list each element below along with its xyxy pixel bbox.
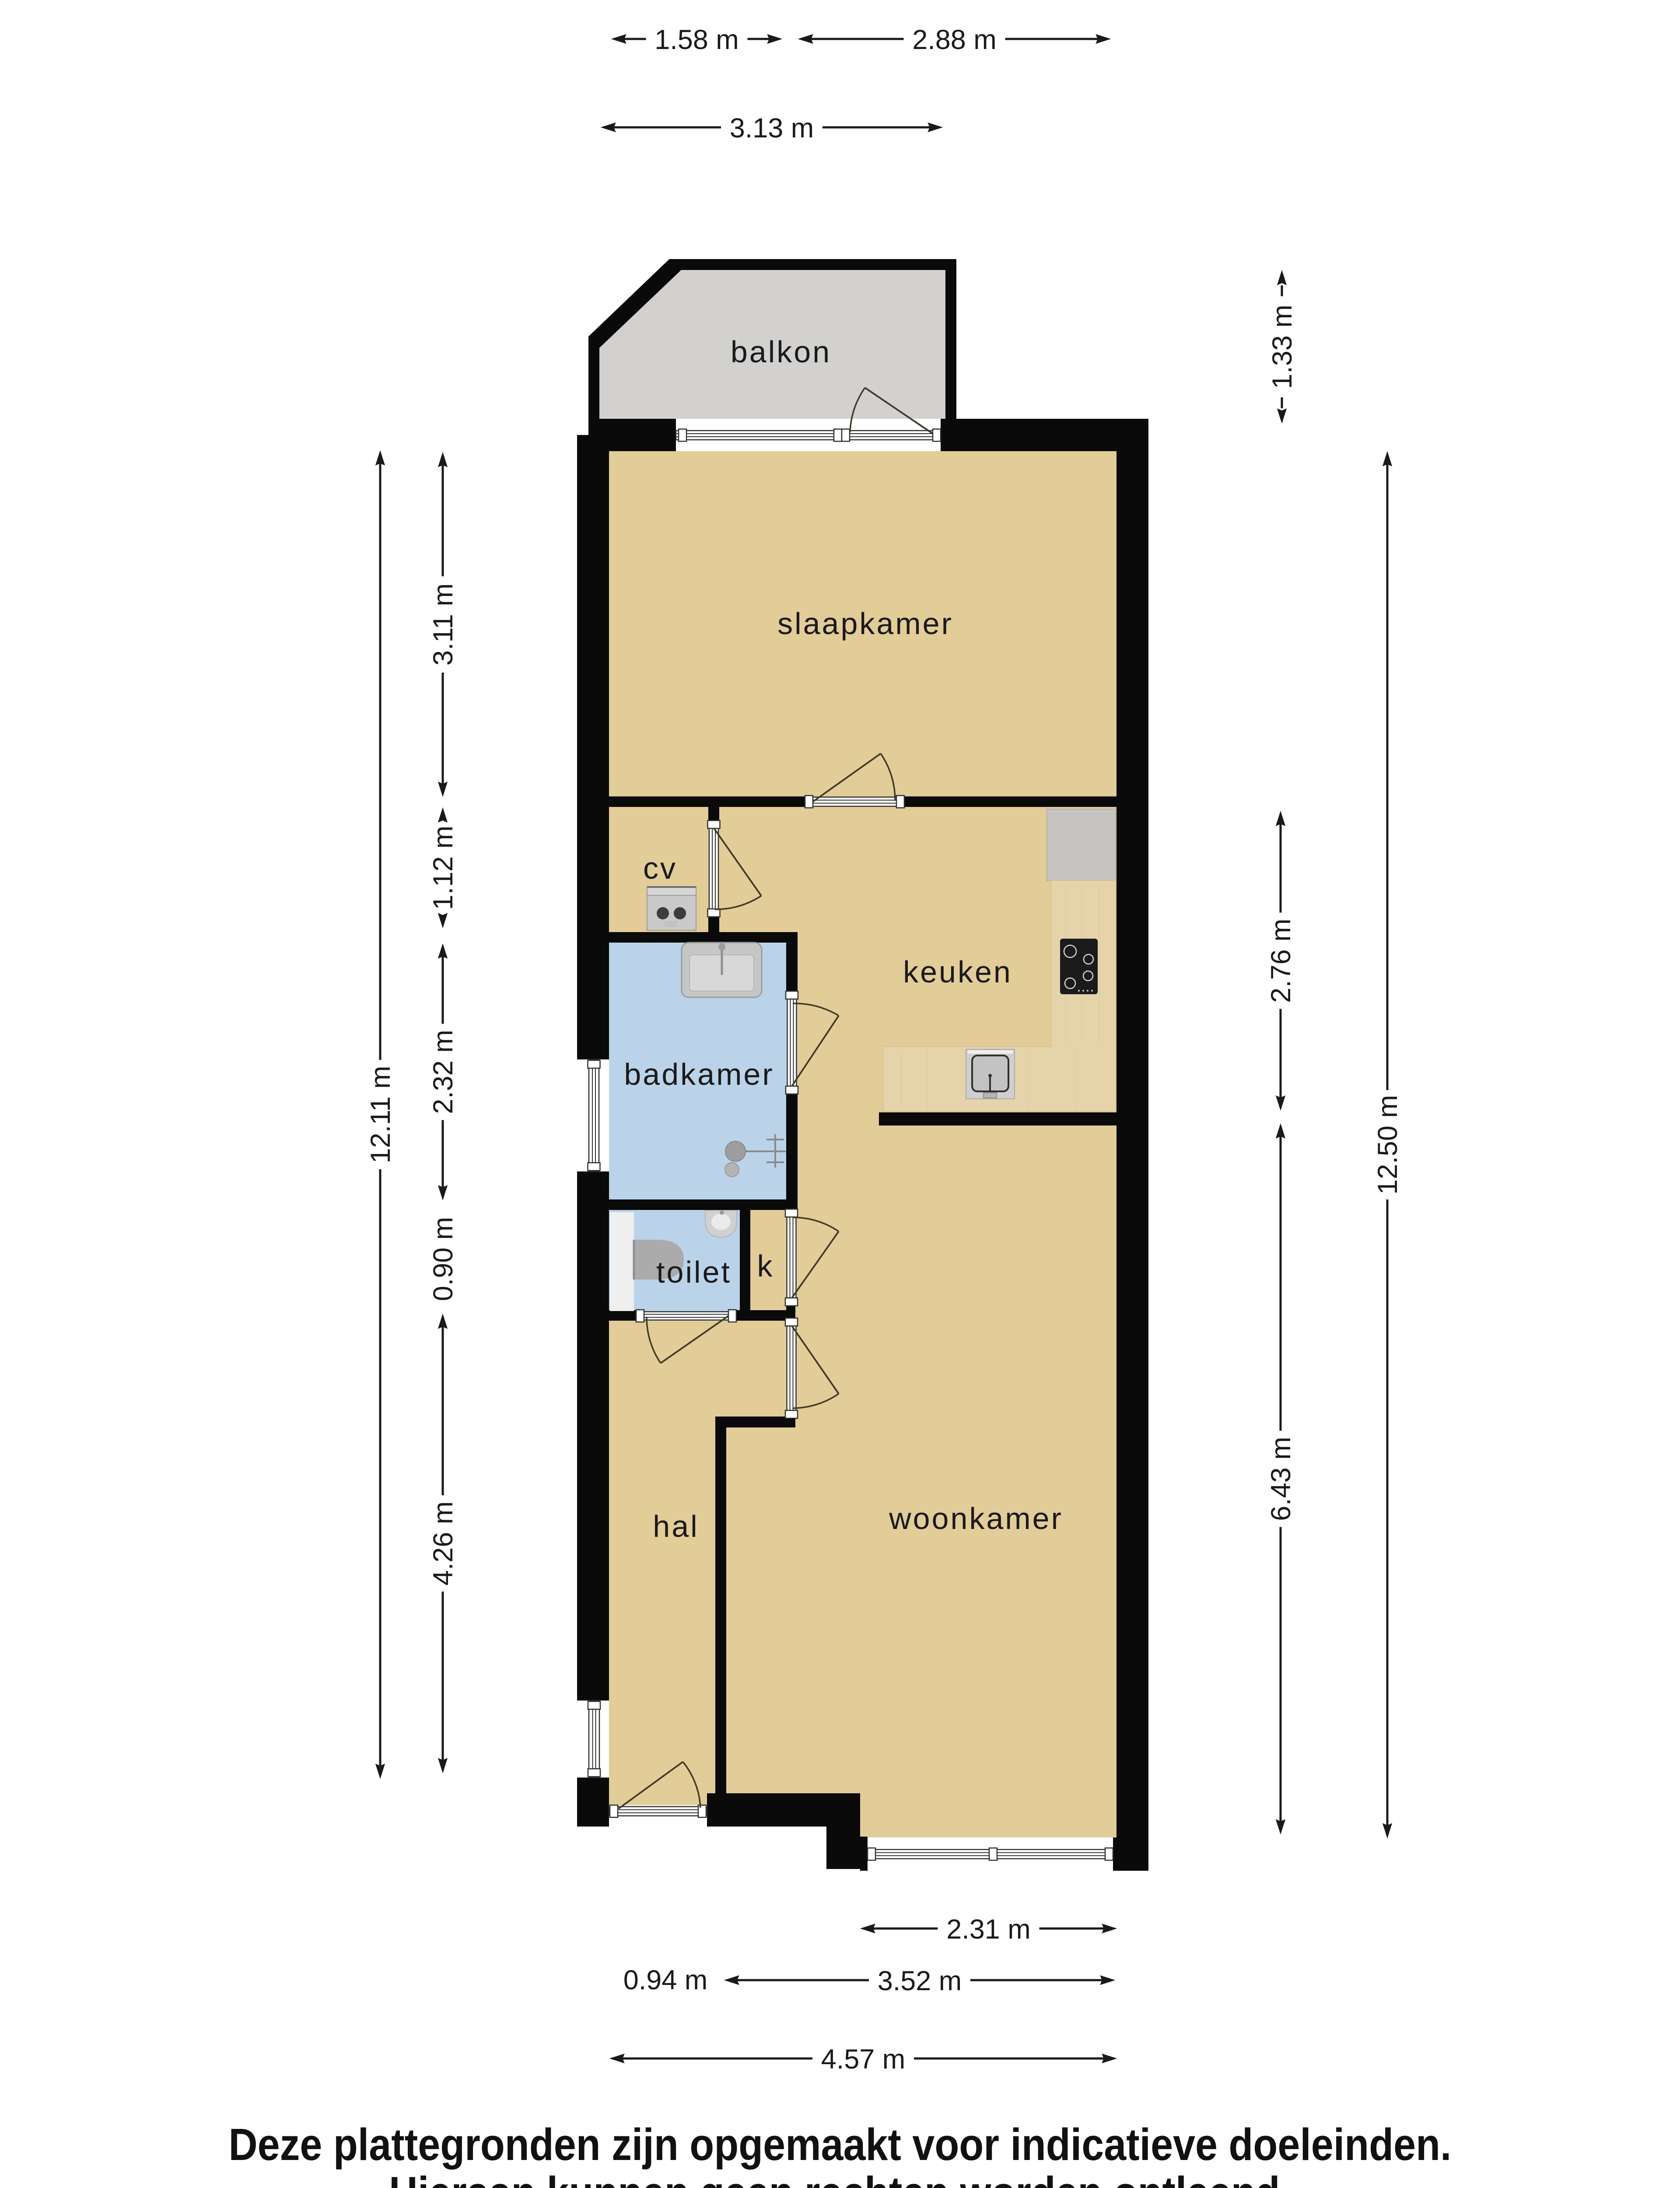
svg-text:balkon: balkon	[731, 335, 831, 369]
svg-text:2.32 m: 2.32 m	[428, 1030, 458, 1114]
svg-text:2.76 m: 2.76 m	[1266, 919, 1296, 1003]
svg-text:6.43 m: 6.43 m	[1266, 1437, 1296, 1521]
svg-text:12.50 m: 12.50 m	[1372, 1095, 1403, 1195]
svg-text:1.12 m: 1.12 m	[428, 826, 458, 910]
svg-text:slaapkamer: slaapkamer	[777, 607, 953, 641]
svg-text:1.58 m: 1.58 m	[654, 25, 739, 55]
svg-text:cv: cv	[643, 851, 677, 885]
svg-text:Deze plattegronden zijn opgema: Deze plattegronden zijn opgemaakt voor i…	[229, 2119, 1452, 2170]
svg-text:woonkamer: woonkamer	[889, 1501, 1063, 1536]
svg-text:k: k	[757, 1249, 774, 1283]
svg-text:0.94 m: 0.94 m	[623, 1965, 708, 1995]
svg-text:3.13 m: 3.13 m	[730, 113, 814, 144]
svg-text:keuken: keuken	[903, 955, 1012, 989]
svg-text:badkamer: badkamer	[624, 1057, 774, 1091]
svg-text:4.26 m: 4.26 m	[428, 1501, 458, 1586]
svg-text:hal: hal	[653, 1509, 699, 1543]
svg-text:2.31 m: 2.31 m	[946, 1914, 1031, 1945]
svg-text:toilet: toilet	[656, 1255, 731, 1289]
svg-text:2.88 m: 2.88 m	[912, 25, 997, 55]
svg-text:3.11 m: 3.11 m	[428, 583, 458, 666]
svg-text:0.90 m: 0.90 m	[428, 1217, 458, 1301]
svg-text:Hieraan kunnen geen rechten wo: Hieraan kunnen geen rechten worden ontle…	[389, 2167, 1291, 2188]
svg-text:1.33 m: 1.33 m	[1267, 305, 1298, 389]
svg-text:3.52 m: 3.52 m	[878, 1966, 962, 1996]
svg-text:4.57 m: 4.57 m	[821, 2044, 906, 2075]
svg-text:12.11 m: 12.11 m	[365, 1066, 396, 1164]
